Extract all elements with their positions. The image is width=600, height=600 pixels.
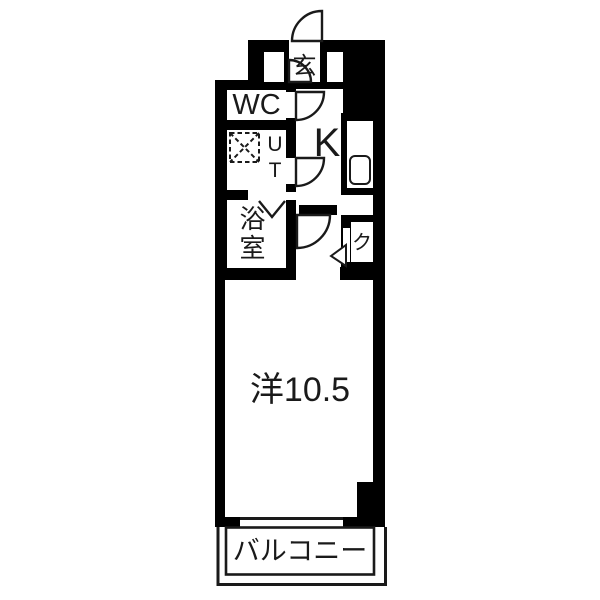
wc-door-swing-icon xyxy=(296,92,324,120)
wall-right xyxy=(373,115,385,527)
label-kitchen: K xyxy=(303,118,351,168)
closet-folding-door-icon xyxy=(331,245,346,266)
wall-bottom-left xyxy=(215,517,240,527)
wall-genkan-shoebox-divider xyxy=(320,52,327,82)
label-main-room: 洋10.5 xyxy=(222,369,378,411)
washer-pan-diagonal-1 xyxy=(230,133,259,162)
kitchen-sink-icon xyxy=(350,156,370,184)
washer-pan-diagonal-2 xyxy=(230,133,259,162)
label-genkan: 玄 xyxy=(289,52,320,82)
wall-bath-bottom xyxy=(215,268,296,280)
wall-upper-right-block xyxy=(343,52,385,113)
floorplan-canvas: 玄 WC UT K 浴室 ク 洋10.5 バルコニー xyxy=(0,0,600,600)
corner-pillar xyxy=(357,482,385,527)
washer-pan-icon xyxy=(230,133,259,162)
label-utility: UT xyxy=(261,132,289,186)
wall-top-left xyxy=(248,40,289,52)
floorplan-drawing xyxy=(0,0,600,600)
label-closet: ク xyxy=(351,230,373,256)
main-room-door-swing-icon xyxy=(297,215,330,248)
wall-top-right xyxy=(320,40,385,52)
washer-pan-outline xyxy=(230,133,259,162)
wall-k-room-divider xyxy=(299,205,337,215)
label-wc: WC xyxy=(227,90,286,120)
label-bathroom: 浴室 xyxy=(236,202,266,266)
label-balcony: バルコニー xyxy=(226,528,374,574)
wall-left-upper xyxy=(215,80,227,280)
entrance-door-swing-icon xyxy=(292,11,322,41)
wall-ut-bath-left xyxy=(215,190,248,200)
wall-wc-ut-divider xyxy=(227,120,286,130)
